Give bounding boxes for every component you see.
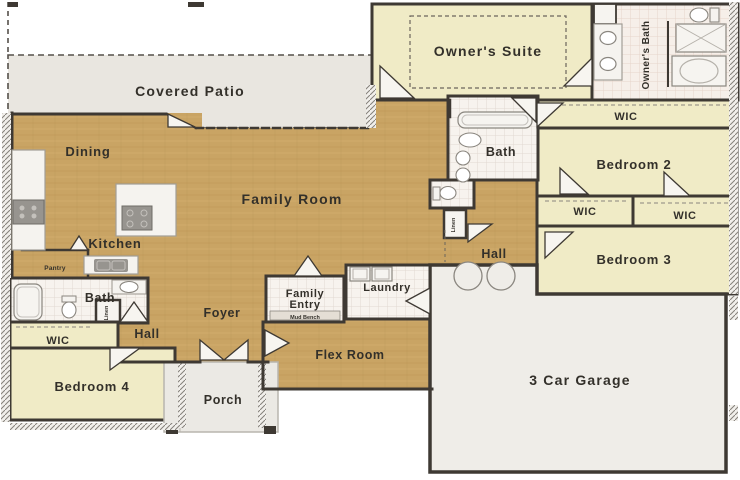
sink	[456, 168, 470, 182]
garage-room	[430, 265, 726, 472]
mud-bench-label: Mud Bench	[290, 315, 320, 321]
water-heater	[487, 262, 515, 290]
middle-bath-label: Bath	[486, 145, 516, 159]
vanity-sink	[120, 282, 138, 293]
cooktop-appliance	[122, 206, 152, 230]
kitchen-label: Kitchen	[88, 236, 141, 251]
owners-suite-label: Owner's Suite	[434, 43, 542, 59]
vanity-sink	[600, 32, 616, 45]
bedroom-2-label: Bedroom 2	[596, 157, 671, 172]
hall-left-label: Hall	[134, 327, 159, 341]
left-bath-label: Bath	[85, 291, 115, 305]
pantry-label: Pantry	[44, 265, 66, 272]
owners-wic-label: WIC	[614, 111, 637, 123]
wic-right-label: WIC	[673, 210, 696, 222]
porch-column	[264, 426, 276, 434]
toilet-tank	[710, 8, 719, 22]
foyer-label: Foyer	[203, 306, 240, 320]
dining-label: Dining	[65, 144, 110, 159]
wic-left-label: WIC	[573, 206, 596, 218]
linen-left-label: Linen	[104, 305, 110, 320]
water-heater	[454, 262, 482, 290]
floor-plan-canvas: Covered Patio Dining Family Room Kitchen…	[0, 0, 740, 480]
family-room-label: Family Room	[241, 191, 342, 207]
garage-label: 3 Car Garage	[529, 372, 631, 388]
linen-hall-label: Linen	[451, 217, 457, 232]
bedroom-3-label: Bedroom 3	[596, 252, 671, 267]
toilet-tank	[433, 187, 440, 200]
covered-patio-label: Covered Patio	[135, 83, 245, 99]
toilet-bowl	[62, 302, 76, 318]
laundry-label: Laundry	[363, 282, 411, 294]
floor-plan-drawing: Covered Patio Dining Family Room Kitchen…	[0, 0, 740, 480]
wall-stub	[188, 2, 204, 7]
bedroom-4-wic-label: WIC	[46, 335, 69, 347]
toilet-tank	[62, 296, 76, 302]
range-appliance	[13, 200, 44, 224]
bedroom-4-label: Bedroom 4	[54, 379, 129, 394]
flex-room-label: Flex Room	[315, 348, 384, 362]
owners-bath-label: Owner's Bath	[641, 21, 652, 90]
toilet-bowl	[690, 8, 708, 22]
toilet-bowl	[440, 187, 456, 200]
hall-right-label: Hall	[481, 247, 506, 261]
family-entry-label-line2: Entry	[289, 299, 320, 311]
vanity-sink	[600, 58, 616, 71]
bathtub	[458, 112, 532, 128]
porch-label: Porch	[204, 393, 242, 407]
pedestal-sink	[459, 133, 481, 147]
wall-stub	[8, 2, 18, 7]
sink	[456, 151, 470, 165]
linen-closet-owners	[594, 4, 616, 24]
